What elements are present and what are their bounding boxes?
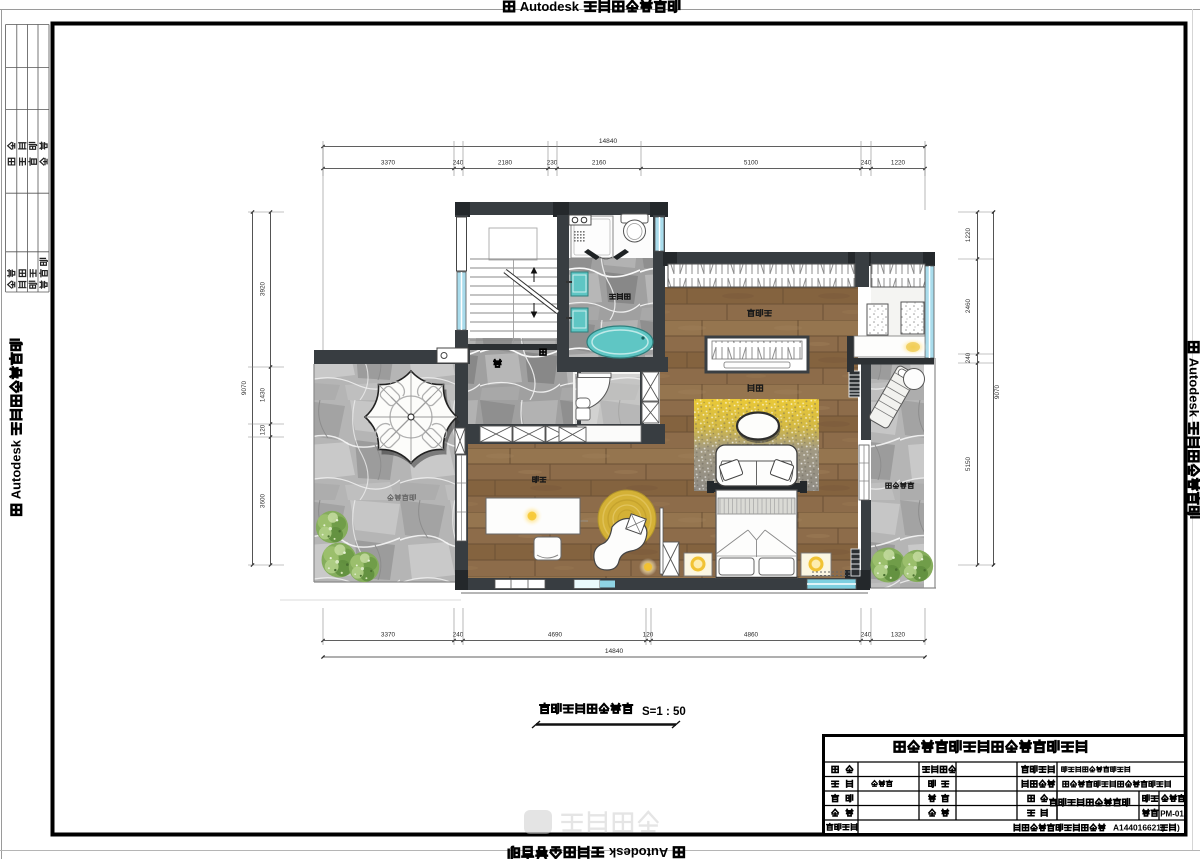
svg-text:3600: 3600 — [260, 493, 267, 508]
svg-text:240: 240 — [861, 160, 872, 167]
svg-text:4690: 4690 — [548, 632, 563, 639]
svg-text:9070: 9070 — [241, 380, 248, 395]
svg-text:3370: 3370 — [381, 632, 396, 639]
svg-text:120: 120 — [260, 424, 267, 435]
svg-text:240: 240 — [453, 160, 464, 167]
svg-text:Autodesk: Autodesk — [1186, 358, 1200, 418]
svg-text:4860: 4860 — [744, 632, 759, 639]
svg-text:5100: 5100 — [744, 160, 759, 167]
svg-text:3920: 3920 — [260, 281, 267, 296]
svg-text:1430: 1430 — [260, 387, 267, 402]
svg-text:Autodesk: Autodesk — [608, 845, 668, 859]
svg-text:2160: 2160 — [592, 160, 607, 167]
svg-text:A144016621(: A144016621( — [1113, 823, 1164, 833]
svg-text:1320: 1320 — [891, 632, 906, 639]
svg-text:3370: 3370 — [381, 160, 396, 167]
svg-text:S=1 : 50: S=1 : 50 — [642, 706, 686, 718]
svg-text:5150: 5150 — [965, 456, 972, 471]
svg-text:2460: 2460 — [965, 298, 972, 313]
svg-text:Autodesk: Autodesk — [520, 0, 580, 14]
svg-text:120: 120 — [643, 632, 654, 639]
svg-text:Autodesk: Autodesk — [9, 439, 24, 499]
svg-text:240: 240 — [453, 632, 464, 639]
svg-text:9070: 9070 — [994, 384, 1001, 399]
svg-text:): ) — [1177, 823, 1180, 833]
svg-text:1220: 1220 — [891, 160, 906, 167]
svg-text:240: 240 — [861, 632, 872, 639]
svg-text:1220: 1220 — [965, 227, 972, 242]
svg-text:14840: 14840 — [599, 138, 618, 145]
svg-text:230: 230 — [547, 160, 558, 167]
svg-text:2180: 2180 — [498, 160, 513, 167]
svg-text:14840: 14840 — [605, 648, 624, 655]
svg-text:PM-01: PM-01 — [1160, 810, 1184, 819]
